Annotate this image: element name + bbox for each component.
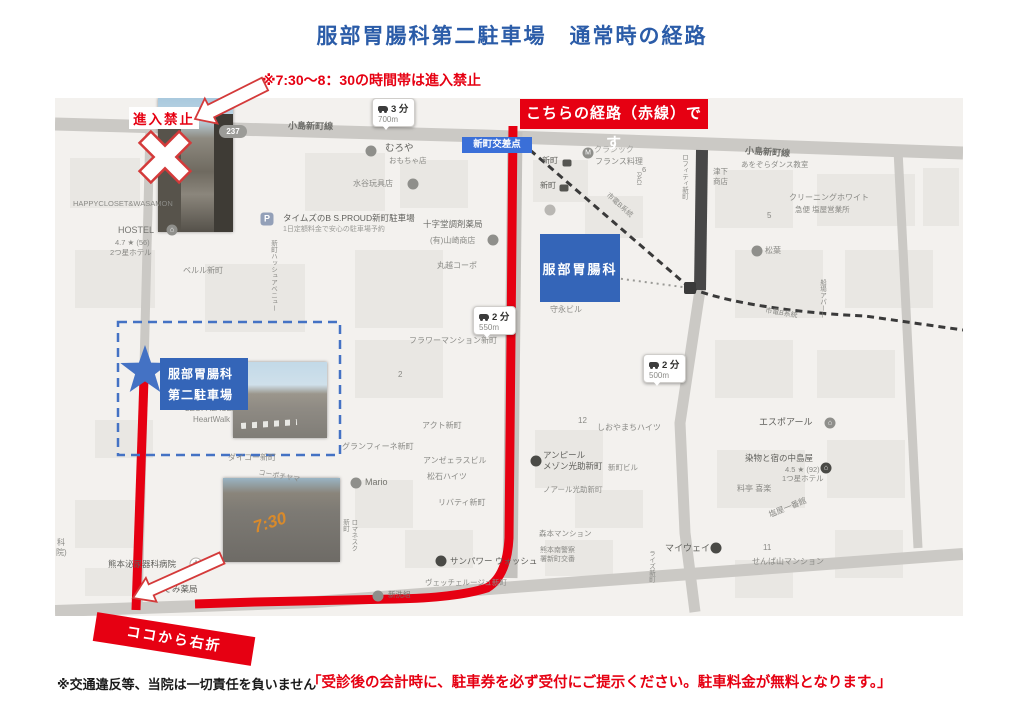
turn-right-banner: ココから右折: [93, 612, 256, 666]
intersection-badge: 新町交差点: [462, 137, 532, 153]
route-map: 7:30 ⌂PM⌂⌂✚★ 小島新町線小島新町線HAPPYCLOSET&WASAM…: [55, 98, 963, 616]
clinic-location-box: 服部胃腸科: [540, 234, 620, 302]
page-title: 服部胃腸科第二駐車場 通常時の経路: [0, 20, 1024, 50]
time-restriction-note: ※7:30〜8：30の時間帯は進入禁止: [262, 70, 481, 90]
flyer-page: { "page": { "title": "服部胃腸科第二駐車場 通常時の経路"…: [0, 0, 1024, 724]
disclaimer-text: ※交通違反等、当院は一切責任を負いません: [57, 674, 316, 693]
red-route-banner: こちらの経路（赤線）です: [520, 99, 708, 129]
car-icon: [378, 106, 388, 111]
parking-location-box: 服部胃腸科 第二駐車場: [160, 358, 248, 410]
no-entry-label: 進入禁止: [129, 107, 199, 129]
travel-time-badge: 2 分550m: [473, 306, 516, 335]
car-icon: [479, 314, 489, 319]
travel-time-badge: 3 分700m: [372, 98, 415, 127]
travel-time-badge: 2 分500m: [643, 354, 686, 383]
map-badges: 3 分700m2 分550m2 分500m: [55, 98, 963, 616]
parking-notice-text: 「受診後の会計時に、駐車券を必ず受付にご提示ください。駐車料金が無料となります。…: [307, 671, 892, 692]
car-icon: [649, 362, 659, 367]
parking-box-line1: 服部胃腸科: [168, 364, 248, 385]
route-237-badge: 237: [219, 125, 247, 138]
parking-box-line2: 第二駐車場: [168, 385, 248, 406]
